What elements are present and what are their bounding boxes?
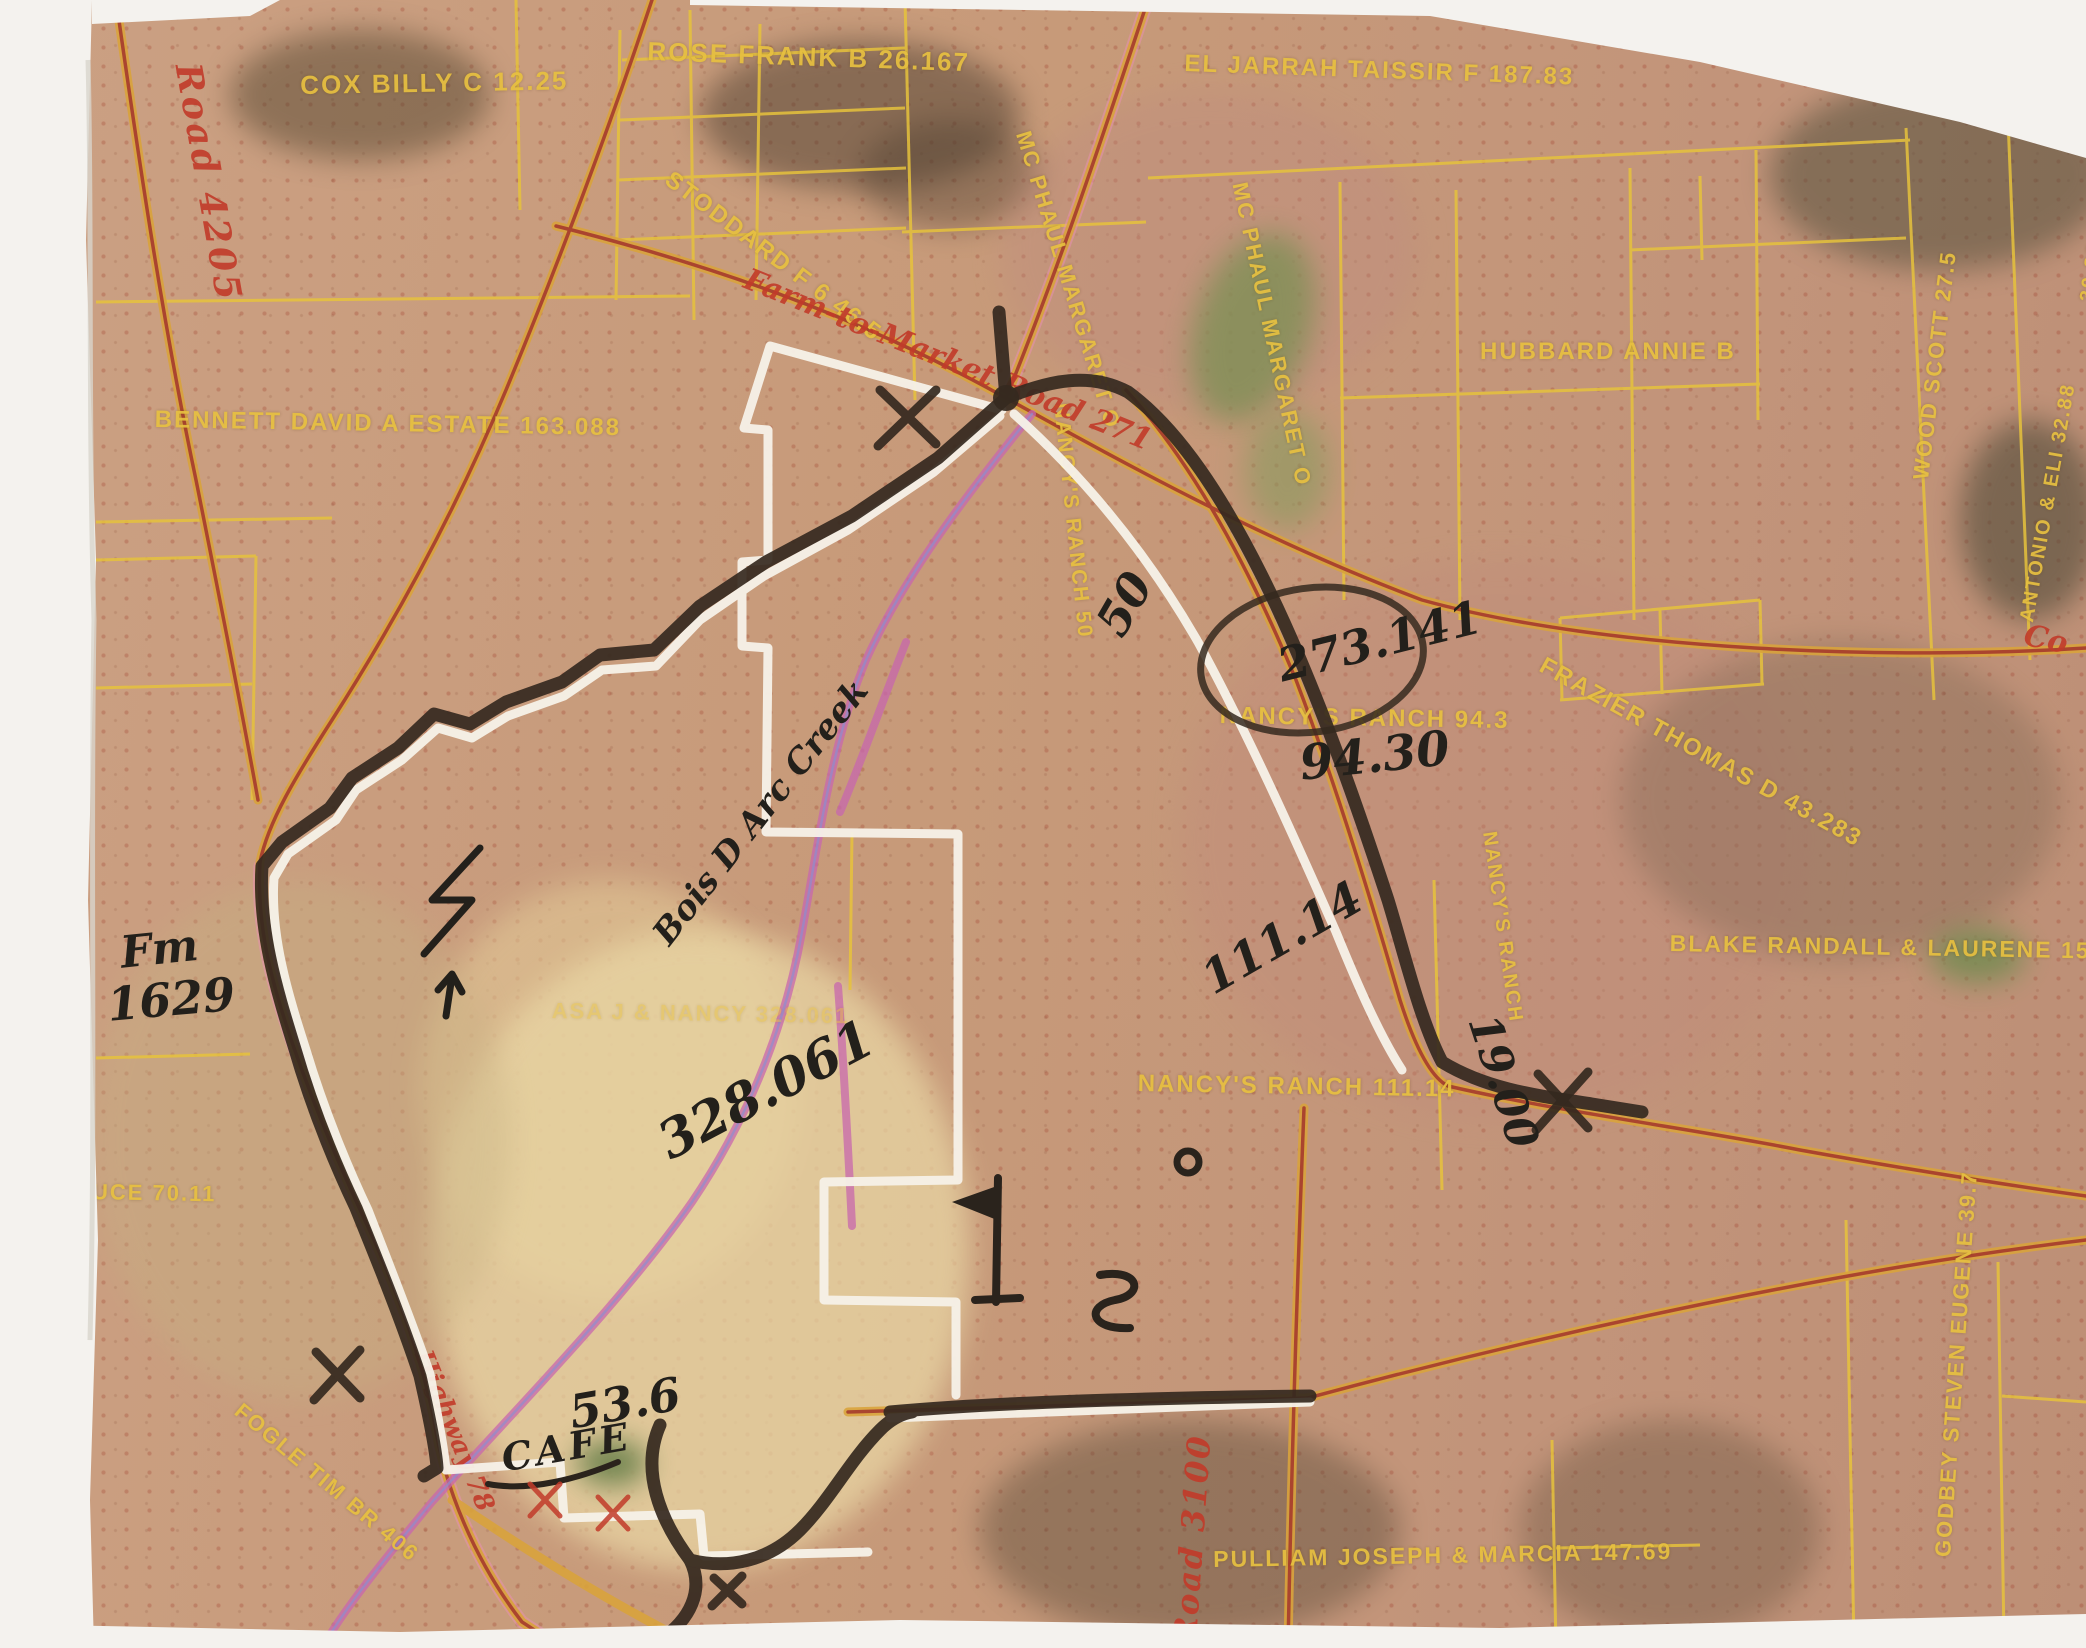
top-left-paper-sliver	[92, 0, 280, 24]
bottom-paper-strip	[0, 1614, 2086, 1648]
scan-paper-edges	[0, 0, 2086, 1648]
top-right-paper-wedge	[690, 0, 2086, 158]
scanned-map-page: COX BILLY C 12.25 ROSE FRANK B 26.167 ST…	[0, 0, 2086, 1648]
left-paper-margin	[0, 0, 98, 1648]
